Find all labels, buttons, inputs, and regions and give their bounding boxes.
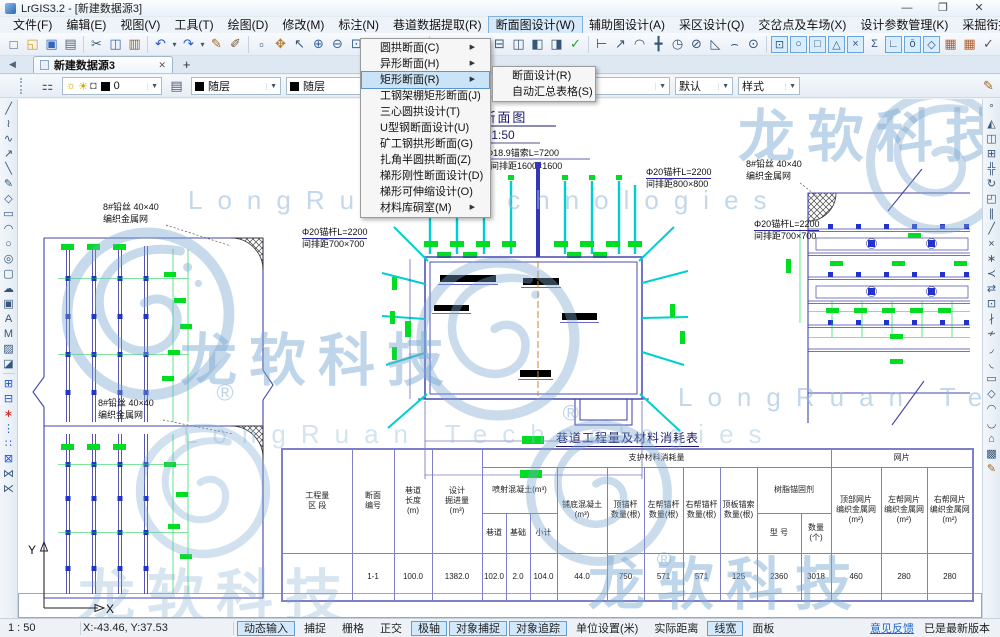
toggle-actual-distance[interactable]: 实际距离 <box>647 621 705 636</box>
svg-text:编织金属网: 编织金属网 <box>98 409 143 420</box>
feedback-link[interactable]: 意见反馈 <box>870 620 914 636</box>
svg-text:8#铅丝 40×40: 8#铅丝 40×40 <box>98 397 154 408</box>
current-color2-swatch <box>290 82 299 91</box>
submenu-arrow-icon: ▶ <box>470 40 475 56</box>
submenu-arrow-icon: ▶ <box>470 72 475 88</box>
tool-ray-icon[interactable]: ↗ <box>1 146 17 161</box>
tool-measure-icon[interactable]: ∷ <box>1 436 17 451</box>
menu-tunnel-data-extract[interactable]: 巷道数据提取(R) <box>386 17 489 33</box>
submenu-item-auto-summary-table[interactable]: 自动汇总表格(S) <box>494 84 594 100</box>
toolbar-separator <box>248 36 249 53</box>
layer-manager-icon[interactable]: ⚏ <box>38 76 57 96</box>
menu-edit[interactable]: 编辑(E) <box>59 17 113 33</box>
section-labels <box>432 275 599 380</box>
tool-gradient-icon[interactable]: ◪ <box>1 356 17 371</box>
status-bar: 1 : 50 X:-43.46, Y:37.53 动态输入捕捉栅格正交极轴对象捕… <box>0 618 1000 637</box>
label: 采掘衔接系统(F) <box>962 18 1000 32</box>
label: 梯形刚性断面设计(D) <box>380 168 483 184</box>
tool-rect-edit-icon[interactable]: ▭ <box>984 371 1000 386</box>
tool-text-icon[interactable]: A <box>1 311 17 326</box>
tool-block-icon[interactable]: ⊞ <box>1 376 17 391</box>
window-right-icon[interactable]: ◨ <box>547 34 566 54</box>
toolbar-grip[interactable] <box>20 78 23 94</box>
label: 矩形断面(R) <box>380 72 462 88</box>
menu-junction-yard[interactable]: 交岔点及车场(X) <box>751 17 853 33</box>
col-header: 顶部网片 编织金属网 (m²) <box>831 467 881 553</box>
cut-icon[interactable]: ✂ <box>87 34 106 54</box>
separator <box>83 36 84 53</box>
submenu-arrow-icon: ▶ <box>470 200 475 216</box>
col-header: 顶锚杆 数量(根) <box>607 467 644 553</box>
toggle-polar[interactable]: 极轴 <box>411 621 447 636</box>
mesh-annotation: 8#铅丝 40×40 编织金属网 <box>746 158 818 197</box>
tool-hatch-icon[interactable]: ▨ <box>1 341 17 356</box>
tool-circle-icon[interactable]: ○ <box>1 236 17 251</box>
grid-settings-icon[interactable]: ▦ <box>941 34 960 54</box>
label: 编辑(E) <box>66 18 106 32</box>
table-title: 巷道工程量及材料消耗表 <box>281 429 974 446</box>
tool-edit-vertex-icon[interactable]: ╱ <box>984 221 1000 236</box>
label: U型钢断面设计(U) <box>380 120 475 136</box>
osnap-intersection-icon[interactable]: × <box>847 36 864 53</box>
menu-item-special-section[interactable]: 异形断面(H)▶ <box>362 56 489 72</box>
node-polyline-icon[interactable]: ↗ <box>611 34 630 54</box>
pan-icon[interactable]: ✥ <box>271 34 290 54</box>
col-header: 右帮网片 编织金属网 (m²) <box>927 467 973 553</box>
tool-image-icon[interactable]: ▣ <box>1 296 17 311</box>
menu-tools[interactable]: 工具(T) <box>167 17 220 33</box>
osnap-midpoint-icon[interactable]: □ <box>809 36 826 53</box>
new-tab-button[interactable]: + <box>183 57 191 72</box>
cell-top-bolt: 750 <box>607 553 644 601</box>
undo-arrow-icon[interactable]: ▾ <box>170 34 179 54</box>
menu-item-trapezoid-telescopic[interactable]: 梯形可伸缩设计(O) <box>362 184 489 200</box>
mesh-annotation: 8#铅丝 40×40 编织金属网 <box>98 397 233 434</box>
col-header: 右帮锚杆 数量(根) <box>683 467 720 553</box>
menu-modify[interactable]: 修改(M) <box>275 17 331 33</box>
label: 异形断面(H) <box>380 56 462 72</box>
tool-move-icon[interactable]: ╬ <box>984 161 1000 176</box>
osnap-strip: ⊡○□△×Σ∟ō◇ <box>770 36 941 53</box>
toolbar-separator <box>588 36 589 53</box>
cell-sc-base: 2.0 <box>506 553 530 601</box>
minimize-button[interactable]: — <box>901 1 913 16</box>
crosshatch-corner <box>231 426 263 458</box>
chevron-down-icon: ▼ <box>655 83 666 90</box>
restore-button[interactable]: ❐ <box>937 1 949 16</box>
paste-icon[interactable]: ▥ <box>125 34 144 54</box>
tool-hatch-edit-icon[interactable]: ▩ <box>984 446 1000 461</box>
materials-table-block: 巷道工程量及材料消耗表 工程量 区 段 断面 编号 巷道 长度 (m) 设计 掘… <box>281 429 974 602</box>
bolt-annotation-right-top: Φ20锚杆L=2200 间排距800×800 <box>646 167 711 190</box>
cell-length: 100.0 <box>394 553 432 601</box>
printer-icon[interactable]: ▤ <box>167 76 186 96</box>
axis-cross-icon[interactable]: ╋ <box>649 34 668 54</box>
misc-strip: ▦▦✓ⓘ <box>941 34 1000 54</box>
label: 扎角半圆拱断面(Z) <box>380 152 475 168</box>
mesh-plates <box>786 229 970 364</box>
col-header: 左帮锚杆 数量(根) <box>644 467 683 553</box>
toggle-ortho[interactable]: 正交 <box>373 621 409 636</box>
layer-combo[interactable]: ☼ ☀ ◘ 0 ▼ <box>62 77 162 95</box>
window-cascade-icon[interactable]: ⊟ <box>490 34 509 54</box>
tab-label: 新建数据源3 <box>54 57 115 73</box>
osnap-node-icon[interactable]: △ <box>828 36 845 53</box>
tool-line-icon[interactable]: ╱ <box>1 101 17 116</box>
cable-rows <box>816 238 968 298</box>
cell-right-bolt: 571 <box>683 553 720 601</box>
cursor-coordinates: X:-43.46, Y:37.53 <box>83 622 231 634</box>
lineweight-value: 默认 <box>679 78 701 94</box>
cell-volume: 1382.0 <box>432 553 482 601</box>
cell-left-bolt: 571 <box>644 553 683 601</box>
col-header: 树脂锚固剂 <box>757 467 831 513</box>
standard-toolbar: □◱▣▤✂◫▥↶▾↷▾✎✐ ▫✥↖⊕⊖⊡1:1↺↻ ◉◢⊞⊟◫◧◨✓ ⊢↗◠╋◷… <box>0 33 1000 56</box>
crosshatch-corner <box>231 238 263 270</box>
chevron-down-icon: ▼ <box>718 83 729 90</box>
tool-arc-edit-icon[interactable]: ◠ <box>984 401 1000 416</box>
label: 辅助图设计(A) <box>589 18 665 32</box>
select-window-icon[interactable]: ▫ <box>252 34 271 54</box>
tool-brush-icon[interactable]: ✎ <box>984 461 1000 476</box>
undo-icon[interactable]: ↶ <box>151 34 170 54</box>
label: 采区设计(Q) <box>679 18 744 32</box>
label: 对象追踪 <box>516 623 560 635</box>
tool-break-icon[interactable]: ∤ <box>984 311 1000 326</box>
bolt-annotation-right-mid: Φ20锚杆L=2200 间排距700×700 <box>754 219 819 242</box>
toolbar-separator <box>766 36 767 53</box>
col-header: 断面 编号 <box>352 449 394 553</box>
label: 正交 <box>380 623 402 635</box>
label: 标注(N) <box>338 18 379 32</box>
menu-mining-area-design[interactable]: 采区设计(Q) <box>672 17 751 33</box>
layer-name: 0 <box>114 80 120 92</box>
svg-text:8#铅丝 40×40: 8#铅丝 40×40 <box>103 201 159 212</box>
svg-text:间排距1600×1600: 间排距1600×1600 <box>490 160 562 171</box>
col-header: 基础 <box>506 513 530 553</box>
toggle-otrack[interactable]: 对象追踪 <box>509 621 567 636</box>
statusbar-separator <box>80 622 81 635</box>
tool-chamfer-icon[interactable]: ◟ <box>984 356 1000 371</box>
toggle-lineweight[interactable]: 线宽 <box>707 621 743 636</box>
label: 对象捕捉 <box>456 623 500 635</box>
svg-text:Y: Y <box>28 543 36 557</box>
separator <box>3 373 15 374</box>
cell-resin-qty: 3018 <box>801 553 831 601</box>
grid-settings2-icon[interactable]: ▦ <box>960 34 979 54</box>
window-split-icon[interactable]: ◫ <box>509 34 528 54</box>
col-header: 巷道 长度 (m) <box>394 449 432 553</box>
menu-design-params[interactable]: 设计参数管理(K) <box>853 17 955 33</box>
col-header: 喷射混凝土(m³) <box>482 467 557 513</box>
tool-polyline-icon[interactable]: ≀ <box>1 116 17 131</box>
save-icon[interactable]: ▣ <box>42 34 61 54</box>
tool-offset-icon[interactable]: ∥ <box>984 206 1000 221</box>
tab-scroll-left-icon[interactable]: ◀ <box>4 59 21 70</box>
label: 文件(F) <box>13 18 52 32</box>
label: 绘图(D) <box>228 18 269 32</box>
osnap-quadrant-icon[interactable]: ◇ <box>923 36 940 53</box>
tool-join-icon[interactable]: ⋈ <box>1 466 17 481</box>
tool-crop-icon[interactable]: ⊡ <box>984 296 1000 311</box>
tool-polygon-icon[interactable]: ◇ <box>1 191 17 206</box>
clock-icon[interactable]: ◷ <box>668 34 687 54</box>
cell-floor: 44.0 <box>557 553 607 601</box>
zoom-in-icon[interactable]: ⊕ <box>309 34 328 54</box>
confirm-icon[interactable]: ✓ <box>979 34 998 54</box>
label: 材料库硐室(M) <box>380 200 462 216</box>
tool-ellipse-icon[interactable]: ◎ <box>1 251 17 266</box>
col-header: 工程量 区 段 <box>282 449 352 553</box>
redo-arrow-icon[interactable]: ▾ <box>198 34 207 54</box>
tool-point-icon[interactable]: ∗ <box>1 406 17 421</box>
menu-item-trapezoid-rigid[interactable]: 梯形刚性断面设计(D) <box>362 168 489 184</box>
window-left-icon[interactable]: ◧ <box>528 34 547 54</box>
menu-dimension[interactable]: 标注(N) <box>331 17 386 33</box>
toggle-units[interactable]: 单位设置(米) <box>569 621 645 636</box>
pencil-edit-icon[interactable]: ✎ <box>979 76 998 96</box>
angle-icon[interactable]: ◺ <box>706 34 725 54</box>
label: 单位设置(米) <box>576 623 638 635</box>
col-header: 巷道 <box>482 513 506 553</box>
rect-section-submenu: 断面设计(R)自动汇总表格(S) <box>492 66 596 102</box>
tool-mirror-icon[interactable]: ◭ <box>984 116 1000 131</box>
cell-cable: 125 <box>720 553 757 601</box>
color-combo[interactable]: 随层 ▼ <box>191 77 281 95</box>
svg-text:Φ18.9锚索L=7200: Φ18.9锚索L=7200 <box>486 147 559 158</box>
tool-polygon-edit-icon[interactable]: ◇ <box>984 386 1000 401</box>
water-ditch <box>575 399 632 425</box>
materials-table: 工程量 区 段 断面 编号 巷道 长度 (m) 设计 掘进量 (m³) 支护材料… <box>281 448 974 602</box>
statusbar-toggles: 动态输入捕捉栅格正交极轴对象捕捉对象追踪单位设置(米)实际距离线宽面板 <box>236 621 782 636</box>
node-curve-icon[interactable]: ◠ <box>630 34 649 54</box>
tab-close-icon[interactable]: ✕ <box>158 60 166 71</box>
label: 工钢架棚矩形断面(J) <box>380 88 481 104</box>
layer-on-icon: ☼ <box>66 80 76 93</box>
style-combo[interactable]: 样式 ▼ <box>738 77 800 95</box>
tool-lengthen-icon[interactable]: ≺ <box>984 266 1000 281</box>
tool-rounded-rect-icon[interactable]: ▢ <box>1 266 17 281</box>
col-header-support: 支护材料消耗量 <box>482 449 831 467</box>
label: 自动汇总表格(S) <box>512 84 593 100</box>
osnap-endpoint-icon[interactable]: ⊡ <box>771 36 788 53</box>
arc-point-icon[interactable]: ⌢ <box>725 34 744 54</box>
toggle-panel[interactable]: 面板 <box>745 621 781 636</box>
layer-color-swatch <box>101 82 110 91</box>
chevron-down-icon: ▼ <box>147 83 158 90</box>
cell-section: 1-1 <box>352 553 394 601</box>
tool-revision-cloud-icon[interactable]: ☁ <box>1 281 17 296</box>
close-button[interactable]: ✕ <box>973 1 985 16</box>
svg-text:X: X <box>106 602 114 616</box>
mesh-annotation: 8#铅丝 40×40 编织金属网 <box>103 201 231 246</box>
col-header: 顶板锚索 数量(根) <box>720 467 757 553</box>
print-icon[interactable]: ▤ <box>61 34 80 54</box>
cell-qty <box>282 553 352 601</box>
menu-item-round-arch-section[interactable]: 圆拱断面(C)▶ <box>362 40 489 56</box>
label: 交岔点及车场(X) <box>758 18 846 32</box>
cell-mesh-left: 280 <box>881 553 927 601</box>
svg-text:编织金属网: 编织金属网 <box>746 170 791 181</box>
color2-value: 随层 <box>303 78 325 94</box>
style-value: 样式 <box>742 78 764 94</box>
submenu-item-section-design[interactable]: 断面设计(R) <box>494 68 594 84</box>
menu-item-mine-steel-arch[interactable]: 矿工钢拱形断面(G) <box>362 136 489 152</box>
menu-item-corner-semicircle-arch[interactable]: 扎角半圆拱断面(Z) <box>362 152 489 168</box>
label: 设计参数管理(K) <box>860 18 948 32</box>
cell-mesh-right: 280 <box>927 553 973 601</box>
circle-slash-icon[interactable]: ⊘ <box>687 34 706 54</box>
menu-section-design[interactable]: 断面图设计(W) <box>489 17 582 33</box>
submenu-arrow-icon: ▶ <box>470 56 475 72</box>
layer-freeze-icon: ☀ <box>78 80 88 93</box>
label: 栅格 <box>342 623 364 635</box>
drawing-canvas[interactable]: ® ® ® <box>18 99 982 618</box>
tool-copy-object-icon[interactable]: ◫ <box>984 131 1000 146</box>
tool-sketch-icon[interactable]: ✎ <box>1 176 17 191</box>
tool-extend-icon[interactable]: ∗ <box>984 251 1000 266</box>
cell-resin-model: 2360 <box>757 553 801 601</box>
tool-array-icon[interactable]: ⊞ <box>984 146 1000 161</box>
table-row: 1-1 100.0 1382.0 102.0 2.0 104.0 44.0 75… <box>282 553 973 601</box>
tool-rotate-icon[interactable]: ↻ <box>984 176 1000 191</box>
menu-view[interactable]: 视图(V) <box>113 17 167 33</box>
label: 圆拱断面(C) <box>380 40 462 56</box>
col-header: 设计 掘进量 (m³) <box>432 449 482 553</box>
lineweight-combo[interactable]: 默认 ▼ <box>675 77 733 95</box>
chevron-down-icon: ▼ <box>266 83 277 90</box>
osnap-tangent-icon[interactable]: ō <box>904 36 921 53</box>
section-design-menu: 圆拱断面(C)▶异形断面(H)▶矩形断面(R)▶工钢架棚矩形断面(J)三心圆拱设… <box>360 38 491 218</box>
statusbar-separator <box>233 622 234 635</box>
app-icon <box>5 3 16 14</box>
osnap-circle-icon[interactable]: ○ <box>790 36 807 53</box>
version-status: 已是最新版本 <box>924 620 990 636</box>
svg-text:8#铅丝 40×40: 8#铅丝 40×40 <box>746 158 802 169</box>
osnap-extension-icon[interactable]: Σ <box>866 36 883 53</box>
toggle-snap[interactable]: 捕捉 <box>297 621 333 636</box>
menu-item-three-center-arch[interactable]: 三心圆拱设计(T) <box>362 104 489 120</box>
pointer-icon[interactable]: ↖ <box>290 34 309 54</box>
tool-break-point-icon[interactable]: ≁ <box>984 326 1000 341</box>
menu-bar: 文件(F)编辑(E)视图(V)工具(T)绘图(D)修改(M)标注(N)巷道数据提… <box>0 17 1000 33</box>
tool-table-icon[interactable]: ⊠ <box>1 451 17 466</box>
color-value: 随层 <box>208 78 230 94</box>
svg-text:编织金属网: 编织金属网 <box>103 213 148 224</box>
tool-segment-icon[interactable]: ╲ <box>1 161 17 176</box>
menu-mining-link-system[interactable]: 采掘衔接系统(F) <box>955 17 1000 33</box>
tool-divide-icon[interactable]: ⋮ <box>1 421 17 436</box>
tool-fillet-icon[interactable]: ◞ <box>984 341 1000 356</box>
beam-section-icon[interactable]: ⊢ <box>592 34 611 54</box>
draw-aid-strip: ⊢↗◠╋◷⊘◺⌢⊙ <box>592 34 763 54</box>
right-plan-drawing: 8#铅丝 40×40 编织金属网 <box>742 141 980 433</box>
tool-arc-icon[interactable]: ◠ <box>1 221 17 236</box>
menu-item-steel-shed-rect-section[interactable]: 工钢架棚矩形断面(J) <box>362 88 489 104</box>
scale-indicator: 1 : 50 <box>0 622 78 634</box>
label: 断面设计(R) <box>512 68 580 84</box>
sketch-brush-icon[interactable]: ✐ <box>226 34 245 54</box>
menu-auxiliary-design[interactable]: 辅助图设计(A) <box>582 17 672 33</box>
file-edit-strip: □◱▣▤✂◫▥↶▾↷▾✎✐ <box>4 34 245 54</box>
tool-fit-icon[interactable]: ⋉ <box>1 481 17 496</box>
label: 修改(M) <box>282 18 324 32</box>
tool-stretch-icon[interactable]: ⇄ <box>984 281 1000 296</box>
label: 三心圆拱设计(T) <box>380 104 475 120</box>
ucs-axes-icon: Y X <box>24 538 116 616</box>
open-file-icon[interactable]: ◱ <box>23 34 42 54</box>
tool-trim-icon[interactable]: × <box>984 236 1000 251</box>
label: 视图(V) <box>120 18 160 32</box>
label: 极轴 <box>418 623 440 635</box>
menu-draw[interactable]: 绘图(D) <box>221 17 276 33</box>
osnap-perpendicular-icon[interactable]: ∟ <box>885 36 902 53</box>
format-brush-icon[interactable]: ✎ <box>207 34 226 54</box>
label: 捕捉 <box>304 623 326 635</box>
label: 工具(T) <box>174 18 213 32</box>
copy-icon[interactable]: ◫ <box>106 34 125 54</box>
chevron-down-icon: ▼ <box>785 83 796 90</box>
label: 巷道数据提取(R) <box>393 18 482 32</box>
redo-icon[interactable]: ↷ <box>179 34 198 54</box>
cell-mesh-top: 460 <box>831 553 881 601</box>
toggle-osnap[interactable]: 对象捕捉 <box>449 621 507 636</box>
document-icon <box>40 60 49 70</box>
col-header: 铺底混凝土 (m³) <box>557 467 607 553</box>
tool-rectangle-icon[interactable]: ▭ <box>1 206 17 221</box>
menu-file[interactable]: 文件(F) <box>6 17 59 33</box>
tool-scale-icon[interactable]: ◰ <box>984 191 1000 206</box>
cell-sc-sum: 104.0 <box>530 553 557 601</box>
modify-tools-sidebar: °◭◫⊞╬↻◰∥╱×∗≺⇄⊡∤≁◞◟▭◇◠◡⌂▩✎ <box>982 99 1000 618</box>
menu-item-rect-section[interactable]: 矩形断面(R)▶ <box>362 72 489 88</box>
tool-solid-icon[interactable]: ⌂ <box>984 431 1000 446</box>
crosshatch-corner <box>808 193 836 221</box>
col-header: 数量 (个) <box>801 513 831 553</box>
label: 实际距离 <box>654 623 698 635</box>
toggle-dynamic-input[interactable]: 动态输入 <box>237 621 295 636</box>
tab-active-document[interactable]: 新建数据源3 ✕ <box>33 56 173 73</box>
menu-item-u-steel-section[interactable]: U型钢断面设计(U) <box>362 120 489 136</box>
cell-sc-tunnel: 102.0 <box>482 553 506 601</box>
tool-curve-edit-icon[interactable]: ◡ <box>984 416 1000 431</box>
zoom-out-icon[interactable]: ⊖ <box>328 34 347 54</box>
tool-match-icon[interactable]: ° <box>984 101 1000 116</box>
center-point-icon[interactable]: ⊙ <box>744 34 763 54</box>
label: 断面图设计(W) <box>496 18 575 32</box>
separator <box>147 36 148 53</box>
title-bar: LrGIS3.2 - [新建数据源3] — ❐ ✕ <box>0 0 1000 17</box>
label: 矿工钢拱形断面(G) <box>380 136 475 152</box>
tool-spline-icon[interactable]: ∿ <box>1 131 17 146</box>
tool-mtext-icon[interactable]: M <box>1 326 17 341</box>
label: 动态输入 <box>244 623 288 635</box>
toggle-grid[interactable]: 栅格 <box>335 621 371 636</box>
current-color-swatch <box>195 82 204 91</box>
application-window: LrGIS3.2 - [新建数据源3] — ❐ ✕ 文件(F)编辑(E)视图(V… <box>0 0 1000 637</box>
edit-confirm-icon[interactable]: ✓ <box>566 34 585 54</box>
menu-item-material-chamber[interactable]: 材料库硐室(M)▶ <box>362 200 489 216</box>
col-header: 型 号 <box>757 513 801 553</box>
label: 线宽 <box>714 623 736 635</box>
col-header-mesh: 网片 <box>831 449 973 467</box>
window-title: LrGIS3.2 - [新建数据源3] <box>21 0 142 16</box>
label: 梯形可伸缩设计(O) <box>380 184 475 200</box>
col-header: 左帮网片 编织金属网 (m²) <box>881 467 927 553</box>
tool-block-edit-icon[interactable]: ⊟ <box>1 391 17 406</box>
new-file-icon[interactable]: □ <box>4 34 23 54</box>
label: 面板 <box>752 623 774 635</box>
